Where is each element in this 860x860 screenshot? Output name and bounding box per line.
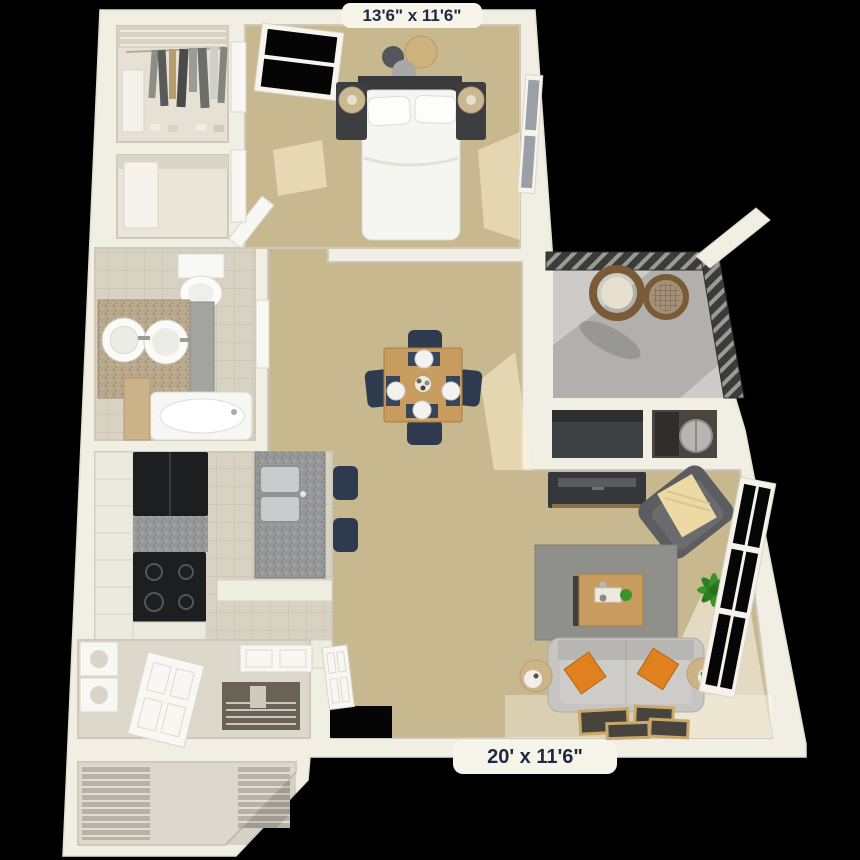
floorplan-svg [0,0,860,860]
door-leaf [240,645,312,672]
kitchen-counter [133,516,208,552]
kitchen-cabinets [133,622,206,640]
tv-console [548,472,646,508]
floor-lamp [520,660,552,692]
balcony-railing [546,252,713,270]
bed-pillow [367,96,410,126]
room-kitchen [95,452,332,668]
door-leaf [256,300,269,368]
table-lamp [339,87,365,113]
water-heater-closet [652,410,717,458]
bedroom-dimensions-label: 13'6" x 11'6" [342,3,482,28]
shower-door [124,378,150,440]
sun-patch [478,132,520,240]
room-walk-in-closet [117,26,228,142]
bedroom-window [254,23,344,100]
floorplan-image: 13'6" x 11'6" 20' x 11'6" [0,0,860,860]
bathroom-bathtub [150,392,252,440]
stove [133,552,206,622]
breakfast-bar [255,452,325,578]
bed-pillow [415,95,457,123]
bar-stool [333,466,358,500]
coat-closet [222,682,300,730]
door-leaf [231,150,246,222]
balcony-chair [646,277,686,317]
living-room-dimensions-label: 20' x 11'6" [453,740,617,774]
table-centerpiece [415,376,431,392]
sofa [548,638,704,712]
coffee-table [573,574,643,626]
picture-frame [579,706,688,739]
closet-shelf-unit [122,70,144,132]
vanity-cabinet [190,302,214,398]
room-balcony [546,208,770,398]
storage-closet [552,410,643,458]
linen-shelf-unit [124,162,158,228]
tv [558,478,636,487]
sun-patch [273,140,327,196]
kitchen-cabinets [95,452,133,640]
door-leaf [231,42,246,112]
kitchen-shelf [217,580,332,601]
bed [362,90,460,240]
wire-shelf [120,28,226,46]
room-bedroom [229,23,543,248]
dryer [80,678,118,712]
room-linen-closet [117,155,228,238]
balcony-beam [696,208,770,268]
dining-chair [407,420,442,445]
room-laundry [78,640,312,748]
entry-doorway [330,706,392,738]
bar-stool [333,518,358,552]
table-lamp [458,87,484,113]
washer [80,642,118,676]
room-entry-storage [78,762,296,845]
room-bathroom [95,248,255,440]
